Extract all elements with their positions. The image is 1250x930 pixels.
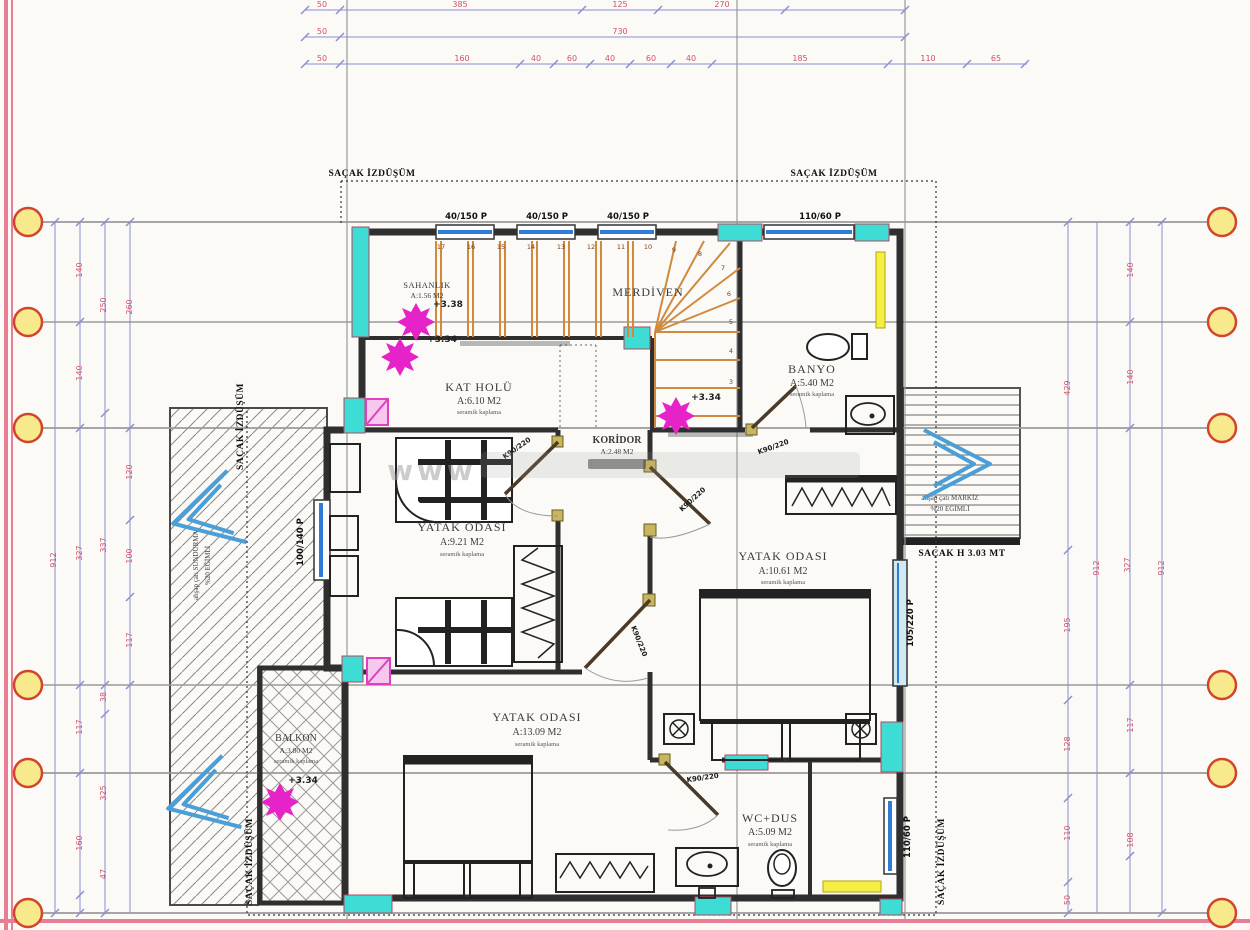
dim-label: 912 xyxy=(1157,560,1166,575)
window-tag: 40/150 P xyxy=(445,212,487,222)
eave-label: SAÇAK İZDÜŞÜM xyxy=(329,166,416,179)
dim-label: 50 xyxy=(317,54,327,63)
room-name: WC+DUS xyxy=(742,811,798,825)
room-area: A:13.09 M2 xyxy=(513,727,562,738)
dim-label: 325 xyxy=(99,785,108,800)
dim-label: 160 xyxy=(75,835,84,850)
step-number: 11 xyxy=(617,243,625,251)
dim-label: 912 xyxy=(49,552,58,567)
step-number: 15 xyxy=(497,243,505,251)
watermark-text: www xyxy=(387,454,477,487)
dim-label: 50 xyxy=(317,27,327,36)
window-tag: 110/60 P xyxy=(799,212,841,222)
room-finish: seramik kaplama xyxy=(274,758,318,765)
room-area: A:5.09 M2 xyxy=(748,827,792,838)
room-name: BANYO xyxy=(788,362,836,376)
eave-label: SAÇAK İZDÜŞÜM xyxy=(791,166,878,179)
room-finish: seramik kaplama xyxy=(761,579,805,586)
level-value: +3.38 xyxy=(433,300,463,310)
room-name: SAHANLIK xyxy=(403,280,451,290)
stair-note-smudge xyxy=(460,341,570,346)
room-area: A:3.80 M2 xyxy=(280,746,313,755)
dim-label: 730 xyxy=(612,27,627,36)
step-number: 16 xyxy=(467,243,475,251)
room-name: YATAK ODASI xyxy=(738,549,827,563)
step-number: 5 xyxy=(729,318,733,326)
eave-projection-outline xyxy=(247,181,936,915)
dim-label: 60 xyxy=(567,54,577,63)
door-tag: K90/220 xyxy=(629,625,649,658)
level-star xyxy=(261,783,299,821)
room-finish: seramik kaplama xyxy=(515,741,559,748)
dim-label: 50 xyxy=(317,0,327,9)
step-number: 7 xyxy=(721,264,725,272)
floor-plan-sheet: 50 385 125 270 50 730 50 160 40 60 40 60… xyxy=(0,0,1250,930)
step-number: 14 xyxy=(527,243,535,251)
dim-label: 100 xyxy=(125,548,134,563)
dim-label: 195 xyxy=(1063,617,1072,632)
dim-label: 160 xyxy=(454,54,469,63)
floor-plan-drawing: 50 385 125 270 50 730 50 160 40 60 40 60… xyxy=(0,0,1250,930)
step-number: 6 xyxy=(727,290,731,298)
room-area: A:1.56 M2 xyxy=(411,291,444,300)
dim-label: 40 xyxy=(605,54,615,63)
window-tag: 40/150 P xyxy=(526,212,568,222)
dim-label: 185 xyxy=(792,54,807,63)
window-tag: 40/150 P xyxy=(607,212,649,222)
room-name: KORİDOR xyxy=(593,434,643,446)
dim-label: 128 xyxy=(1063,736,1072,751)
dim-label: 140 xyxy=(1126,262,1135,277)
shaft-symbols xyxy=(366,399,390,684)
dim-label: 60 xyxy=(646,54,656,63)
step-number: 9 xyxy=(672,246,676,254)
dim-label: 108 xyxy=(1126,832,1135,847)
dim-label: 120 xyxy=(125,464,134,479)
level-star xyxy=(381,338,419,376)
level-star xyxy=(657,397,695,435)
dim-label: 429 xyxy=(1063,380,1072,395)
dim-label: 65 xyxy=(991,54,1001,63)
dim-label: 327 xyxy=(75,545,84,560)
dim-label: 117 xyxy=(1126,717,1135,732)
dim-label: 117 xyxy=(125,632,134,647)
room-name: YATAK ODASI xyxy=(492,710,581,724)
step-number: 13 xyxy=(557,243,565,251)
step-number: 8 xyxy=(698,250,702,258)
dim-label: 140 xyxy=(75,365,84,380)
step-number: 10 xyxy=(644,243,652,251)
watermark-blur xyxy=(480,452,860,478)
dim-label: 38 xyxy=(99,692,108,702)
dim-label: 260 xyxy=(125,299,134,314)
dim-label: 385 xyxy=(452,0,467,9)
dim-label: 110 xyxy=(1063,825,1072,840)
canopy-label: %20 EĞİMLİ xyxy=(930,505,970,513)
dim-label: 117 xyxy=(75,719,84,734)
level-value: +3.34 xyxy=(691,393,721,403)
step-number: 17 xyxy=(437,243,445,251)
dim-label: 40 xyxy=(531,54,541,63)
room-area: A:10.61 M2 xyxy=(759,566,808,577)
stair-note-smudge xyxy=(668,432,753,437)
room-area: A:5.40 M2 xyxy=(790,378,834,389)
step-number: 4 xyxy=(729,347,733,355)
level-value: +3.34 xyxy=(288,776,318,786)
room-finish: seramik kaplama xyxy=(457,409,501,416)
room-finish: seramik kaplama xyxy=(440,551,484,558)
dim-label: 140 xyxy=(1126,369,1135,384)
dim-label: 50 xyxy=(1063,895,1072,905)
window-tag: 100/140 P xyxy=(296,518,306,566)
step-number: 12 xyxy=(587,243,595,251)
level-value: +3.34 xyxy=(427,335,457,345)
dim-label: 270 xyxy=(714,0,729,9)
room-area: A:9.21 M2 xyxy=(440,537,484,548)
eave-height-label: SAÇAK H 3.03 MT xyxy=(918,549,1005,559)
room-name: MERDİVEN xyxy=(612,285,683,299)
dim-label: 337 xyxy=(99,537,108,552)
room-name: YATAK ODASI xyxy=(417,520,506,534)
porch-label: ahşap çatı SUNDURMA xyxy=(192,530,200,600)
dim-label: 912 xyxy=(1092,560,1101,575)
window-tag: 105/220 P xyxy=(906,599,916,647)
step-number: 3 xyxy=(729,378,733,386)
room-name: KAT HOLÜ xyxy=(445,380,512,394)
markiz-canopy xyxy=(903,388,1020,545)
dim-label: 40 xyxy=(686,54,696,63)
window-tag: 110/60 P xyxy=(903,816,913,858)
room-finish: seramik kaplama xyxy=(790,391,834,398)
dim-label: 47 xyxy=(99,869,108,879)
room-area: A:6.10 M2 xyxy=(457,396,501,407)
room-finish: seramik kaplama xyxy=(748,841,792,848)
porch-label: %20 EĞİMLİ xyxy=(204,545,212,585)
balcony-hatch xyxy=(258,668,345,905)
dim-label: 125 xyxy=(612,0,627,9)
dim-label: 110 xyxy=(920,54,935,63)
room-name: BALKON xyxy=(275,733,317,744)
nightstand-symbol xyxy=(664,714,876,744)
dim-label: 250 xyxy=(99,297,108,312)
stair-step-numbers: 17 16 15 14 13 12 11 10 9 8 7 6 5 4 3 xyxy=(437,243,733,386)
dim-label: 327 xyxy=(1123,557,1132,572)
dim-label: 140 xyxy=(75,262,84,277)
